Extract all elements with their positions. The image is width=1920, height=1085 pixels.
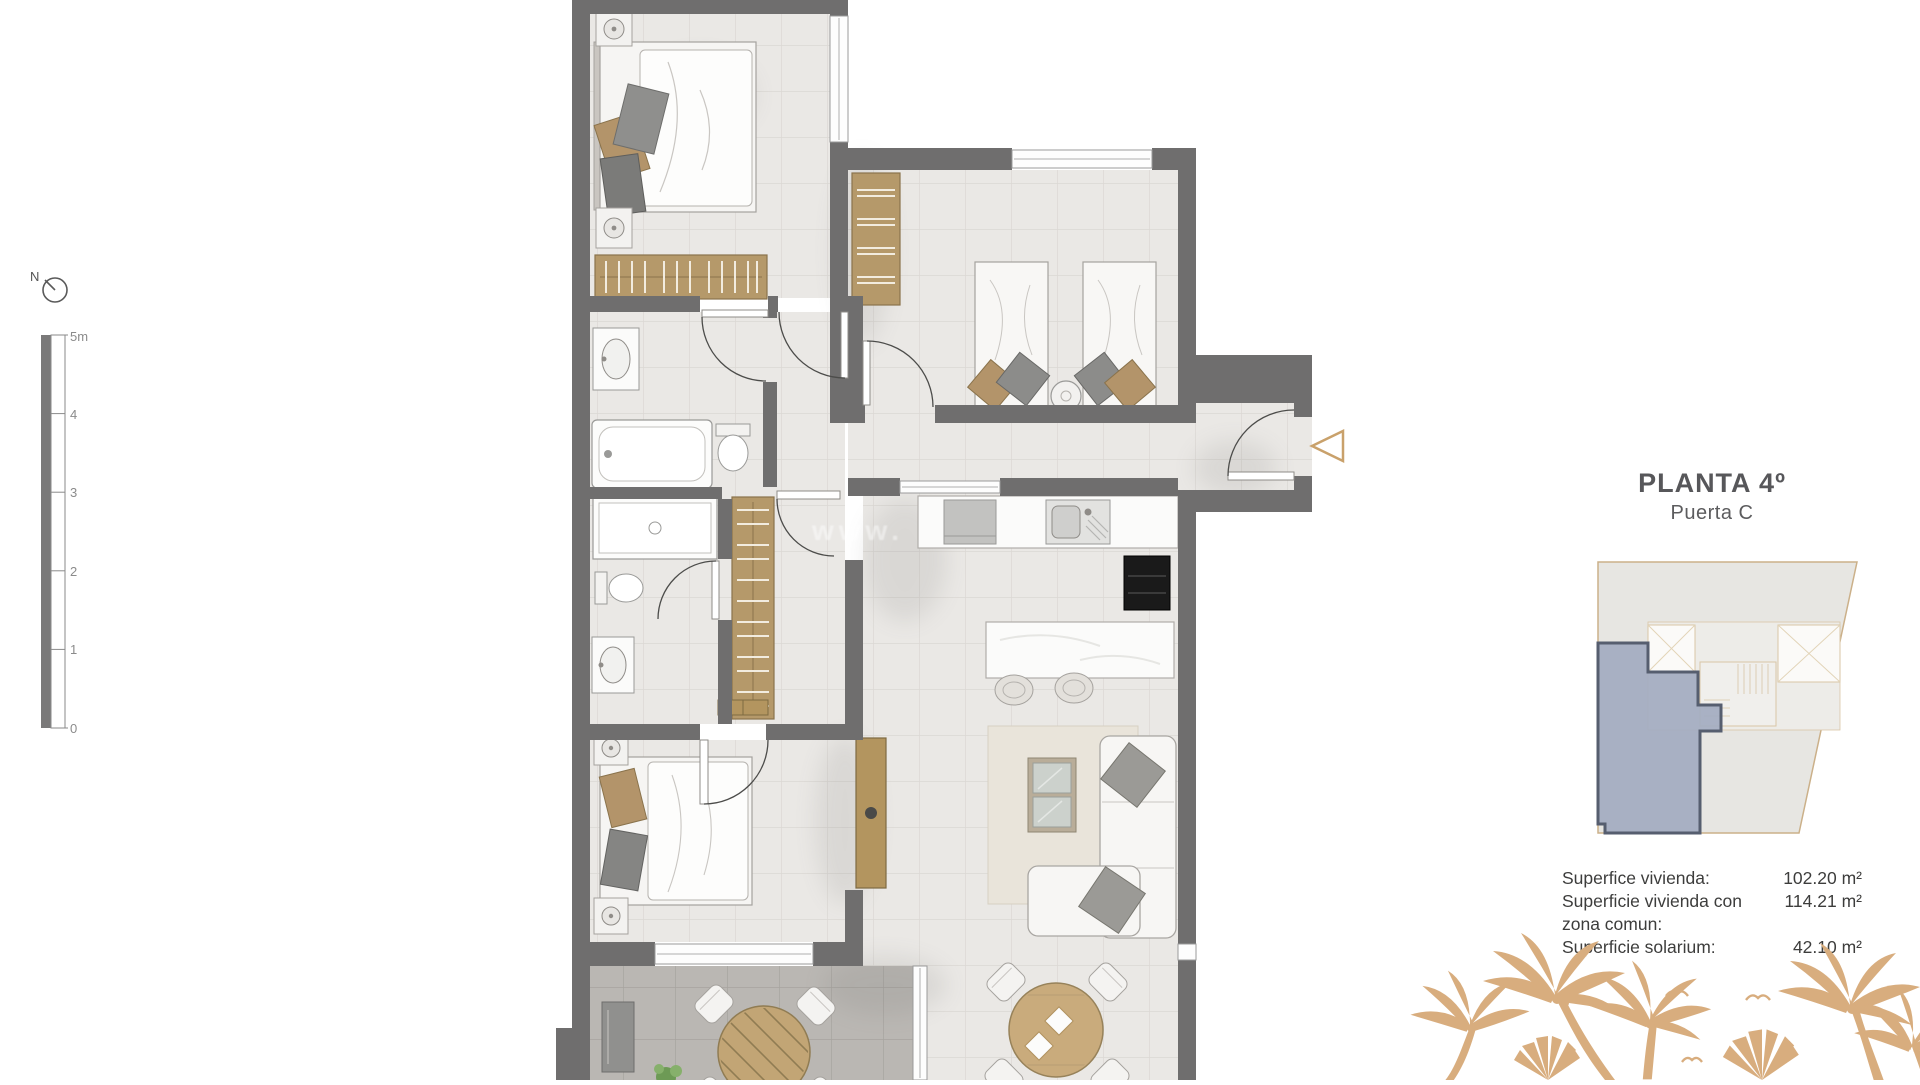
window-kitchen-hatch <box>900 481 1000 493</box>
scale-tick-1: 1 <box>70 642 77 657</box>
fan-palm-icon <box>1723 1029 1799 1080</box>
palm-tree-icon <box>1589 961 1711 1080</box>
area-row-label: zona comun: <box>1562 914 1662 934</box>
bed-single-left-bedroom-2 <box>968 262 1050 410</box>
nightstand-bedroom-1-bottom <box>596 208 632 248</box>
bed-single-right-bedroom-2 <box>1074 262 1156 410</box>
page-subtitle: Puerta C <box>1671 502 1754 524</box>
window-bedroom-1 <box>830 16 848 142</box>
wardrobe-corridor <box>732 497 774 719</box>
area-row-value: 114.21 m² <box>1785 891 1863 911</box>
palm-tree-icon <box>1778 943 1920 1080</box>
nightstand-bedroom-3-bottom <box>594 898 628 934</box>
area-row-label: Superficie vivienda con <box>1562 891 1742 911</box>
scale-tick-5m: 5m <box>70 329 88 344</box>
watermark: www. <box>811 515 904 546</box>
key-plan-inset <box>1598 562 1857 833</box>
tv-cabinet-terrace <box>602 1002 634 1072</box>
kitchen-cooktop <box>1124 556 1170 610</box>
toilet-bathroom-2 <box>595 572 643 604</box>
nightstand-bedroom-1-top <box>596 12 632 46</box>
window-dining <box>1178 944 1196 960</box>
scale-bar-outline <box>51 335 65 728</box>
scale-tick-0: 0 <box>70 721 77 736</box>
kitchen-sink <box>1046 500 1110 544</box>
sliding-door-bedroom-3 <box>856 738 886 888</box>
sink-bathroom-1 <box>593 328 639 390</box>
wardrobe-bedroom-2 <box>852 173 900 305</box>
coffee-table <box>1028 758 1076 832</box>
scale-tick-3: 3 <box>70 485 77 500</box>
floorplan-canvas: www. N 5m 4 3 2 1 0 PLANTA 4º Puerta C <box>0 0 1920 1080</box>
bed-double-bedroom-3 <box>599 757 752 905</box>
area-row-label: Superfice vivienda: <box>1562 868 1710 888</box>
window-bedroom-3 <box>655 944 813 964</box>
floorplan-page: www. N 5m 4 3 2 1 0 PLANTA 4º Puerta C <box>0 0 1920 1080</box>
entrance-arrow-icon <box>1312 431 1343 461</box>
bar-stool-right <box>1055 673 1093 703</box>
light-well-right <box>1778 625 1840 682</box>
north-compass-icon: N <box>30 269 67 302</box>
area-row-value: 102.20 m² <box>1783 868 1862 888</box>
window-bedroom-2 <box>1012 150 1152 168</box>
light-well-left <box>1648 625 1695 672</box>
scale-bar: 5m 4 3 2 1 0 <box>41 329 88 736</box>
page-title: PLANTA 4º <box>1638 468 1786 498</box>
bed-double-bedroom-1 <box>594 42 756 216</box>
info-panel: PLANTA 4º Puerta C <box>1562 468 1862 957</box>
scale-bar-fill <box>41 335 51 728</box>
shower-bathroom-2 <box>593 497 717 559</box>
north-label: N <box>30 269 39 284</box>
bar-stool-left <box>995 675 1033 705</box>
surface-areas: Superfice vivienda: 102.20 m² Superficie… <box>1562 868 1862 957</box>
scale-tick-2: 2 <box>70 564 77 579</box>
kitchen-island <box>986 622 1174 678</box>
scale-tick-4: 4 <box>70 407 77 422</box>
window-terrace-divider <box>913 966 927 1080</box>
toilet-bathroom-1 <box>716 424 750 471</box>
fan-palm-icon <box>1514 1036 1580 1080</box>
sink-bathroom-2 <box>592 637 634 693</box>
wardrobe-bedroom-1 <box>595 255 767 299</box>
bathtub-bathroom-1 <box>592 420 712 488</box>
